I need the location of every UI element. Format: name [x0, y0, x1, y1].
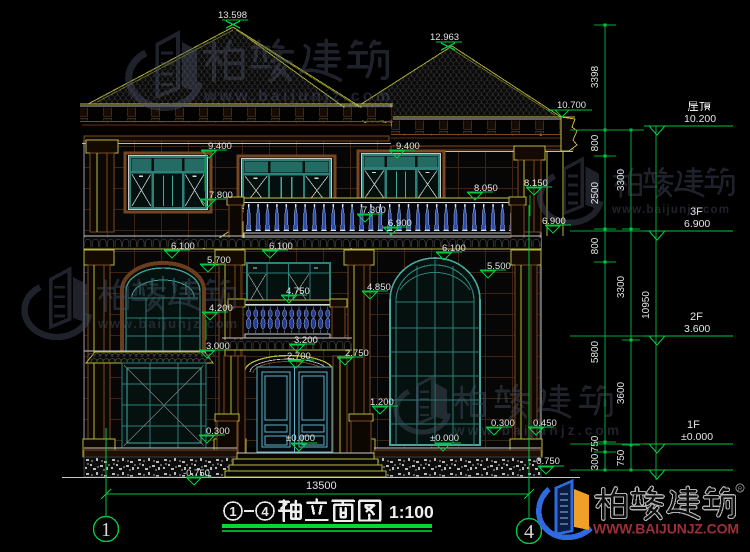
svg-text:3300: 3300	[616, 275, 627, 298]
svg-text:6.900: 6.900	[684, 218, 710, 230]
svg-text:4: 4	[261, 504, 269, 519]
svg-text:13.598: 13.598	[218, 10, 247, 21]
svg-text:1: 1	[101, 519, 111, 541]
svg-text:3300: 3300	[616, 168, 627, 191]
svg-text:±0.000: ±0.000	[286, 433, 315, 444]
svg-text:-0.750: -0.750	[533, 456, 560, 467]
svg-text:10.700: 10.700	[557, 100, 586, 111]
svg-text:±0.000: ±0.000	[681, 431, 713, 443]
svg-text:12.963: 12.963	[430, 32, 459, 43]
svg-text:2500: 2500	[590, 181, 601, 204]
svg-text:±0.000: ±0.000	[430, 433, 459, 444]
svg-text:300: 300	[590, 453, 601, 470]
svg-text:3.600: 3.600	[684, 323, 710, 335]
svg-text:750: 750	[616, 449, 627, 466]
svg-text:1:100: 1:100	[389, 502, 434, 522]
svg-text:10950: 10950	[641, 291, 652, 319]
svg-text:800: 800	[590, 237, 601, 254]
svg-text:800: 800	[590, 134, 601, 151]
svg-text:3600: 3600	[616, 381, 627, 404]
svg-text:1F: 1F	[687, 419, 700, 431]
svg-text:4: 4	[524, 521, 534, 543]
svg-text:R: R	[738, 487, 743, 493]
svg-text:WWW.BAIJUNJZ.COM: WWW.BAIJUNJZ.COM	[593, 521, 739, 537]
svg-text:5800: 5800	[590, 340, 601, 363]
svg-text:1: 1	[229, 504, 236, 519]
svg-text:www.baijunjz.com: www.baijunjz.com	[611, 204, 729, 216]
svg-text:10.200: 10.200	[684, 113, 716, 125]
svg-text:3F: 3F	[690, 206, 703, 218]
svg-text:2F: 2F	[690, 311, 703, 323]
svg-text:3398: 3398	[590, 65, 601, 88]
svg-text:13500: 13500	[306, 480, 337, 492]
